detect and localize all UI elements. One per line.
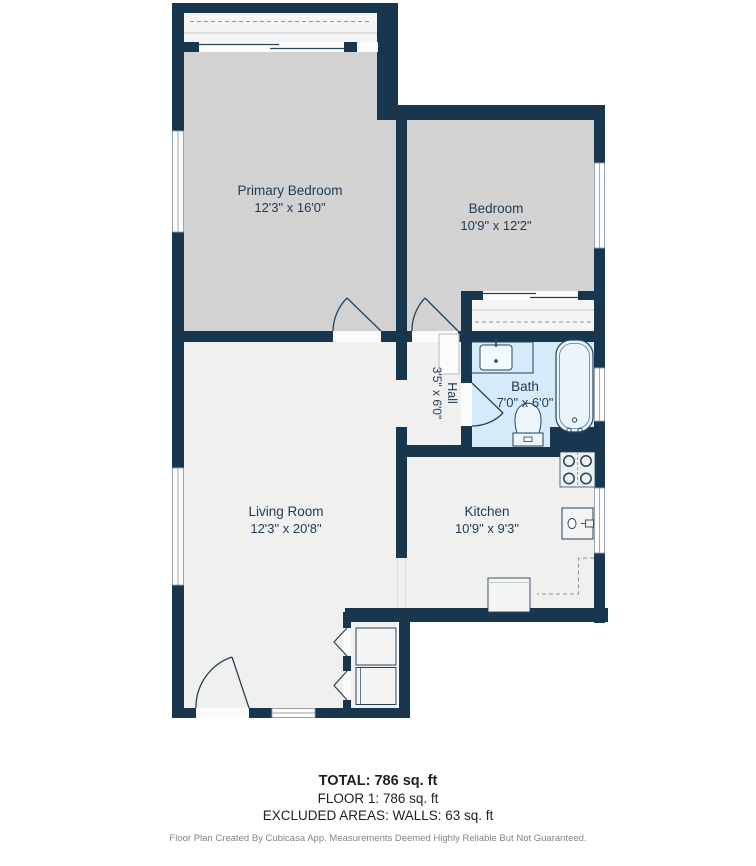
- wall-laundry-left-stub3: [343, 700, 351, 708]
- bedroom-closet-floor: [472, 300, 594, 331]
- wall-laundry-left-stub2: [343, 656, 351, 671]
- toilet-tank: [513, 433, 543, 446]
- wall-bath-left-lower: [461, 426, 472, 445]
- excluded-area-text: EXCLUDED AREAS: WALLS: 63 sq. ft: [0, 807, 756, 824]
- vanity-sink: [480, 345, 512, 370]
- window-primary-left: [173, 131, 184, 232]
- kitchen-label: Kitchen: [464, 504, 509, 519]
- kitchen-faucet: [586, 520, 594, 527]
- sink-drain: [494, 359, 498, 363]
- laundry-opening2: [343, 671, 351, 700]
- washer: [356, 628, 396, 665]
- wall-laundry-right: [399, 622, 410, 708]
- living-room-dims: 12'3" x 20'8": [250, 521, 322, 536]
- window-kitchen-right: [595, 488, 605, 553]
- primary-door-threshold: [333, 331, 381, 342]
- sink-basin: [568, 519, 576, 529]
- laundry-opening1: [343, 628, 351, 656]
- slider-jamb-left: [184, 42, 199, 52]
- wall-kitchen-bottom: [345, 608, 608, 622]
- bedroom-closet-slider-band: [483, 291, 578, 300]
- window-bedroom-right: [595, 163, 605, 248]
- kitchen-dims: 10'9" x 9'3": [455, 521, 519, 536]
- floor-plan-page: Primary Bedroom 12'3" x 16'0" Bedroom 10…: [0, 0, 756, 866]
- bath-dims: 7'0" x 6'0": [497, 395, 554, 410]
- wall-outer-top: [172, 3, 397, 13]
- bedroom-dims: 10'9" x 12'2": [460, 218, 532, 233]
- wall-laundry-left-stub1: [343, 612, 351, 628]
- dryer: [356, 668, 396, 705]
- window-bath-right: [595, 368, 605, 421]
- wall-kitchen-left: [396, 447, 407, 558]
- wall-primary-right-upper: [377, 3, 398, 120]
- wall-bath-bottom: [472, 447, 550, 457]
- living-room-label: Living Room: [248, 504, 323, 519]
- window-living-left: [173, 468, 184, 585]
- total-area-text: TOTAL: 786 sq. ft: [0, 772, 756, 790]
- primary-bedroom-label: Primary Bedroom: [237, 183, 342, 198]
- area-summary: TOTAL: 786 sq. ft FLOOR 1: 786 sq. ft EX…: [0, 772, 756, 824]
- primary-bedroom-dims: 12'3" x 16'0": [254, 200, 326, 215]
- slider-jamb-right: [344, 42, 357, 52]
- entry-door-threshold: [196, 708, 249, 718]
- bath-door-threshold: [461, 383, 472, 426]
- bathtub: [556, 340, 593, 433]
- bath-label: Bath: [511, 379, 539, 394]
- hall-label: Hall: [445, 382, 459, 404]
- bedroom-label: Bedroom: [469, 201, 524, 216]
- kitchen-sink: [562, 508, 594, 539]
- living-hall-opening: [396, 380, 407, 427]
- floor-plan-drawing: Primary Bedroom 12'3" x 16'0" Bedroom 10…: [0, 0, 756, 866]
- floor-area-text: FLOOR 1: 786 sq. ft: [0, 790, 756, 807]
- wall-outer-left: [172, 3, 184, 718]
- wall-hall-bottom: [396, 445, 472, 457]
- wall-bedroom-top: [385, 105, 605, 120]
- wall-center-stub: [396, 427, 407, 447]
- credit-line: Floor Plan Created By Cubicasa App. Meas…: [0, 833, 756, 844]
- wall-bath-left-upper: [461, 342, 472, 383]
- stove: [560, 452, 595, 487]
- window-living-bottom: [272, 709, 315, 718]
- hall-dims: 3'5" x 6'0": [430, 367, 444, 419]
- kitchen-counter: [488, 578, 530, 612]
